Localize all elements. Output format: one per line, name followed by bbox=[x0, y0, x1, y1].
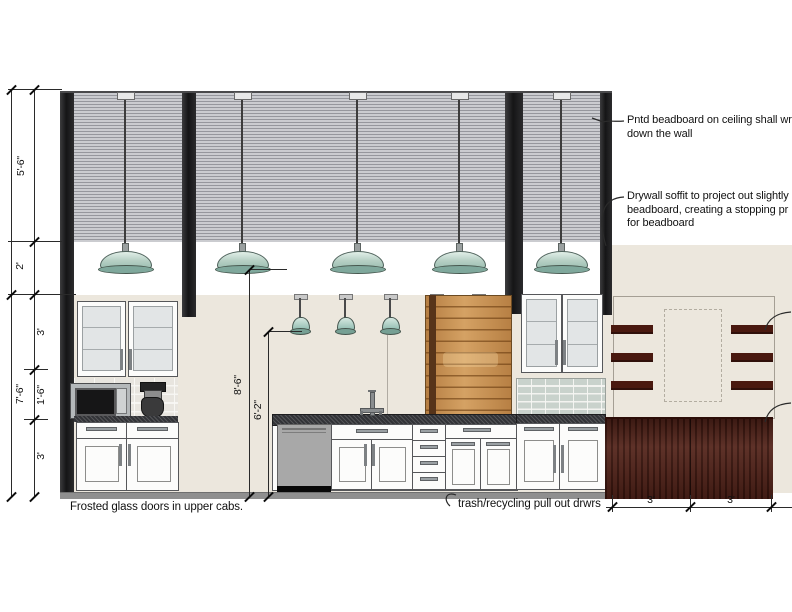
note-beadboard-line2: down the wall bbox=[627, 128, 792, 142]
pendant-mount bbox=[384, 294, 398, 300]
cabinet-handle bbox=[119, 444, 122, 466]
dim-label-dining-left: 3' bbox=[637, 494, 665, 506]
ceiling-bracket bbox=[234, 92, 252, 100]
pendant-rod bbox=[560, 95, 562, 252]
column bbox=[505, 93, 523, 314]
door-panel bbox=[137, 446, 171, 482]
note-beadboard: Pntd beadboard on ceiling shall wr down … bbox=[627, 114, 792, 141]
pullout-handle bbox=[486, 442, 510, 446]
pullout-handle bbox=[451, 442, 475, 446]
pendant-rim bbox=[330, 265, 386, 274]
cabinet-handle bbox=[553, 445, 556, 473]
door-panel bbox=[379, 447, 406, 482]
drawer-handle bbox=[420, 429, 438, 433]
ceiling-bracket bbox=[451, 92, 469, 100]
note-soffit-line3: for beadboard bbox=[627, 217, 789, 231]
dim-line-small-pendant bbox=[268, 332, 269, 497]
dim-label-base-cabs: 3' bbox=[35, 436, 47, 476]
pendant-rod bbox=[458, 95, 460, 252]
door-panel bbox=[85, 446, 119, 482]
drawer-handle bbox=[420, 461, 438, 465]
faucet-spout bbox=[379, 411, 382, 415]
drawer-handle bbox=[137, 427, 168, 431]
door-panel bbox=[452, 449, 475, 485]
pendant-rim bbox=[380, 328, 401, 335]
cabinet-handle bbox=[372, 444, 375, 466]
dishwasher-handle bbox=[282, 428, 326, 430]
coffee-carafe bbox=[141, 397, 164, 418]
frosted-pane bbox=[526, 299, 557, 367]
cabinet-handle bbox=[129, 349, 132, 370]
pendant-rod bbox=[356, 95, 358, 252]
dim-label-small-pendant: 6'-2" bbox=[252, 390, 264, 430]
elevation-sheet: 3' 3' 5'-6" 2' 3' 1'-6" 3' 7'-6" 8'-6" 6… bbox=[0, 0, 792, 612]
pendant-rim bbox=[335, 328, 356, 335]
microwave-window bbox=[75, 388, 116, 416]
dim-label-upper-cabs: 3' bbox=[35, 312, 47, 352]
wood-shelf bbox=[611, 381, 653, 390]
frosted-pane bbox=[133, 306, 173, 371]
wainscot-seam bbox=[690, 419, 691, 497]
pendant-rim bbox=[534, 265, 590, 274]
pendant-rod bbox=[124, 95, 126, 252]
note-soffit: Drywall soffit to project out slightly b… bbox=[627, 190, 789, 231]
cabinet-handle bbox=[364, 444, 367, 466]
sink-centerline bbox=[387, 335, 388, 414]
cabinet-handle bbox=[128, 444, 131, 466]
note-soffit-line1: Drywall soffit to project out slightly bbox=[627, 190, 789, 204]
beadboard-ceiling bbox=[60, 93, 612, 242]
wood-edge-stile bbox=[429, 295, 436, 415]
dim-label-large-pendant: 8'-6" bbox=[232, 365, 244, 405]
column bbox=[182, 93, 196, 317]
dashed-layout-box bbox=[664, 309, 722, 402]
drawer-handle bbox=[463, 428, 491, 432]
dim-extension bbox=[8, 294, 76, 295]
wood-shelf bbox=[731, 353, 773, 362]
note-beadboard-line1: Pntd beadboard on ceiling shall wr bbox=[627, 114, 792, 128]
wood-shelf bbox=[611, 325, 653, 334]
dim-label-ceiling-band: 5'-6" bbox=[15, 146, 27, 186]
faucet-spout bbox=[360, 411, 363, 415]
dim-label-wall-total: 7'-6" bbox=[14, 374, 26, 414]
dim-extension bbox=[249, 269, 287, 270]
wood-shelf bbox=[731, 381, 773, 390]
dim-label-dining-right: 3' bbox=[717, 494, 745, 506]
pendant-rim bbox=[98, 265, 154, 274]
note-trash-recycling: trash/recycling pull out drwrs bbox=[458, 498, 601, 512]
column bbox=[600, 93, 612, 315]
drawer-handle bbox=[420, 477, 438, 481]
drawer bbox=[412, 472, 447, 490]
dishwasher bbox=[277, 424, 333, 490]
pendant-rod bbox=[241, 95, 243, 252]
frosted-pane bbox=[82, 306, 121, 371]
wood-highlight bbox=[443, 352, 498, 367]
ceiling-bracket bbox=[349, 92, 367, 100]
pendant-mount bbox=[294, 294, 308, 300]
backsplash-tile bbox=[516, 378, 606, 416]
faucet-cap bbox=[368, 390, 376, 392]
note-frosted-glass: Frosted glass doors in upper cabs. bbox=[70, 501, 243, 515]
wood-shelf bbox=[731, 325, 773, 334]
door-panel bbox=[339, 447, 366, 482]
door-top-handle bbox=[568, 427, 598, 431]
door-panel bbox=[487, 449, 510, 485]
cabinet-handle bbox=[561, 445, 564, 473]
note-soffit-line2: beadboard, creating a stopping pr bbox=[627, 204, 789, 218]
cabinet-handle bbox=[555, 340, 558, 365]
microwave-controls bbox=[116, 388, 127, 414]
cabinet-handle bbox=[563, 340, 566, 365]
drawer-handle bbox=[86, 427, 117, 431]
dishwasher-line bbox=[282, 432, 326, 433]
pendant-rod bbox=[344, 298, 346, 318]
dim-label-soffit: 2' bbox=[14, 246, 26, 286]
drawer-handle bbox=[356, 429, 388, 433]
dim-extension bbox=[268, 331, 302, 332]
pendant-rod bbox=[389, 298, 391, 318]
dim-line-dining bbox=[606, 507, 792, 508]
drawer-handle bbox=[420, 445, 438, 449]
frosted-pane bbox=[567, 299, 598, 367]
cabinet-handle bbox=[120, 349, 123, 370]
pendant-rod bbox=[299, 298, 301, 318]
dim-label-mid-band: 1'-6" bbox=[35, 375, 47, 415]
door-top-handle bbox=[524, 427, 554, 431]
pendant-mount bbox=[339, 294, 353, 300]
pendant-rim bbox=[432, 265, 488, 274]
dim-line-large-pendant bbox=[249, 270, 250, 497]
door-panel bbox=[568, 440, 598, 482]
column bbox=[60, 93, 74, 497]
wainscot-panel bbox=[605, 417, 773, 499]
ceiling-bracket bbox=[117, 92, 135, 100]
door-panel bbox=[524, 440, 554, 482]
ceiling-bracket bbox=[553, 92, 571, 100]
wood-shelf bbox=[611, 353, 653, 362]
